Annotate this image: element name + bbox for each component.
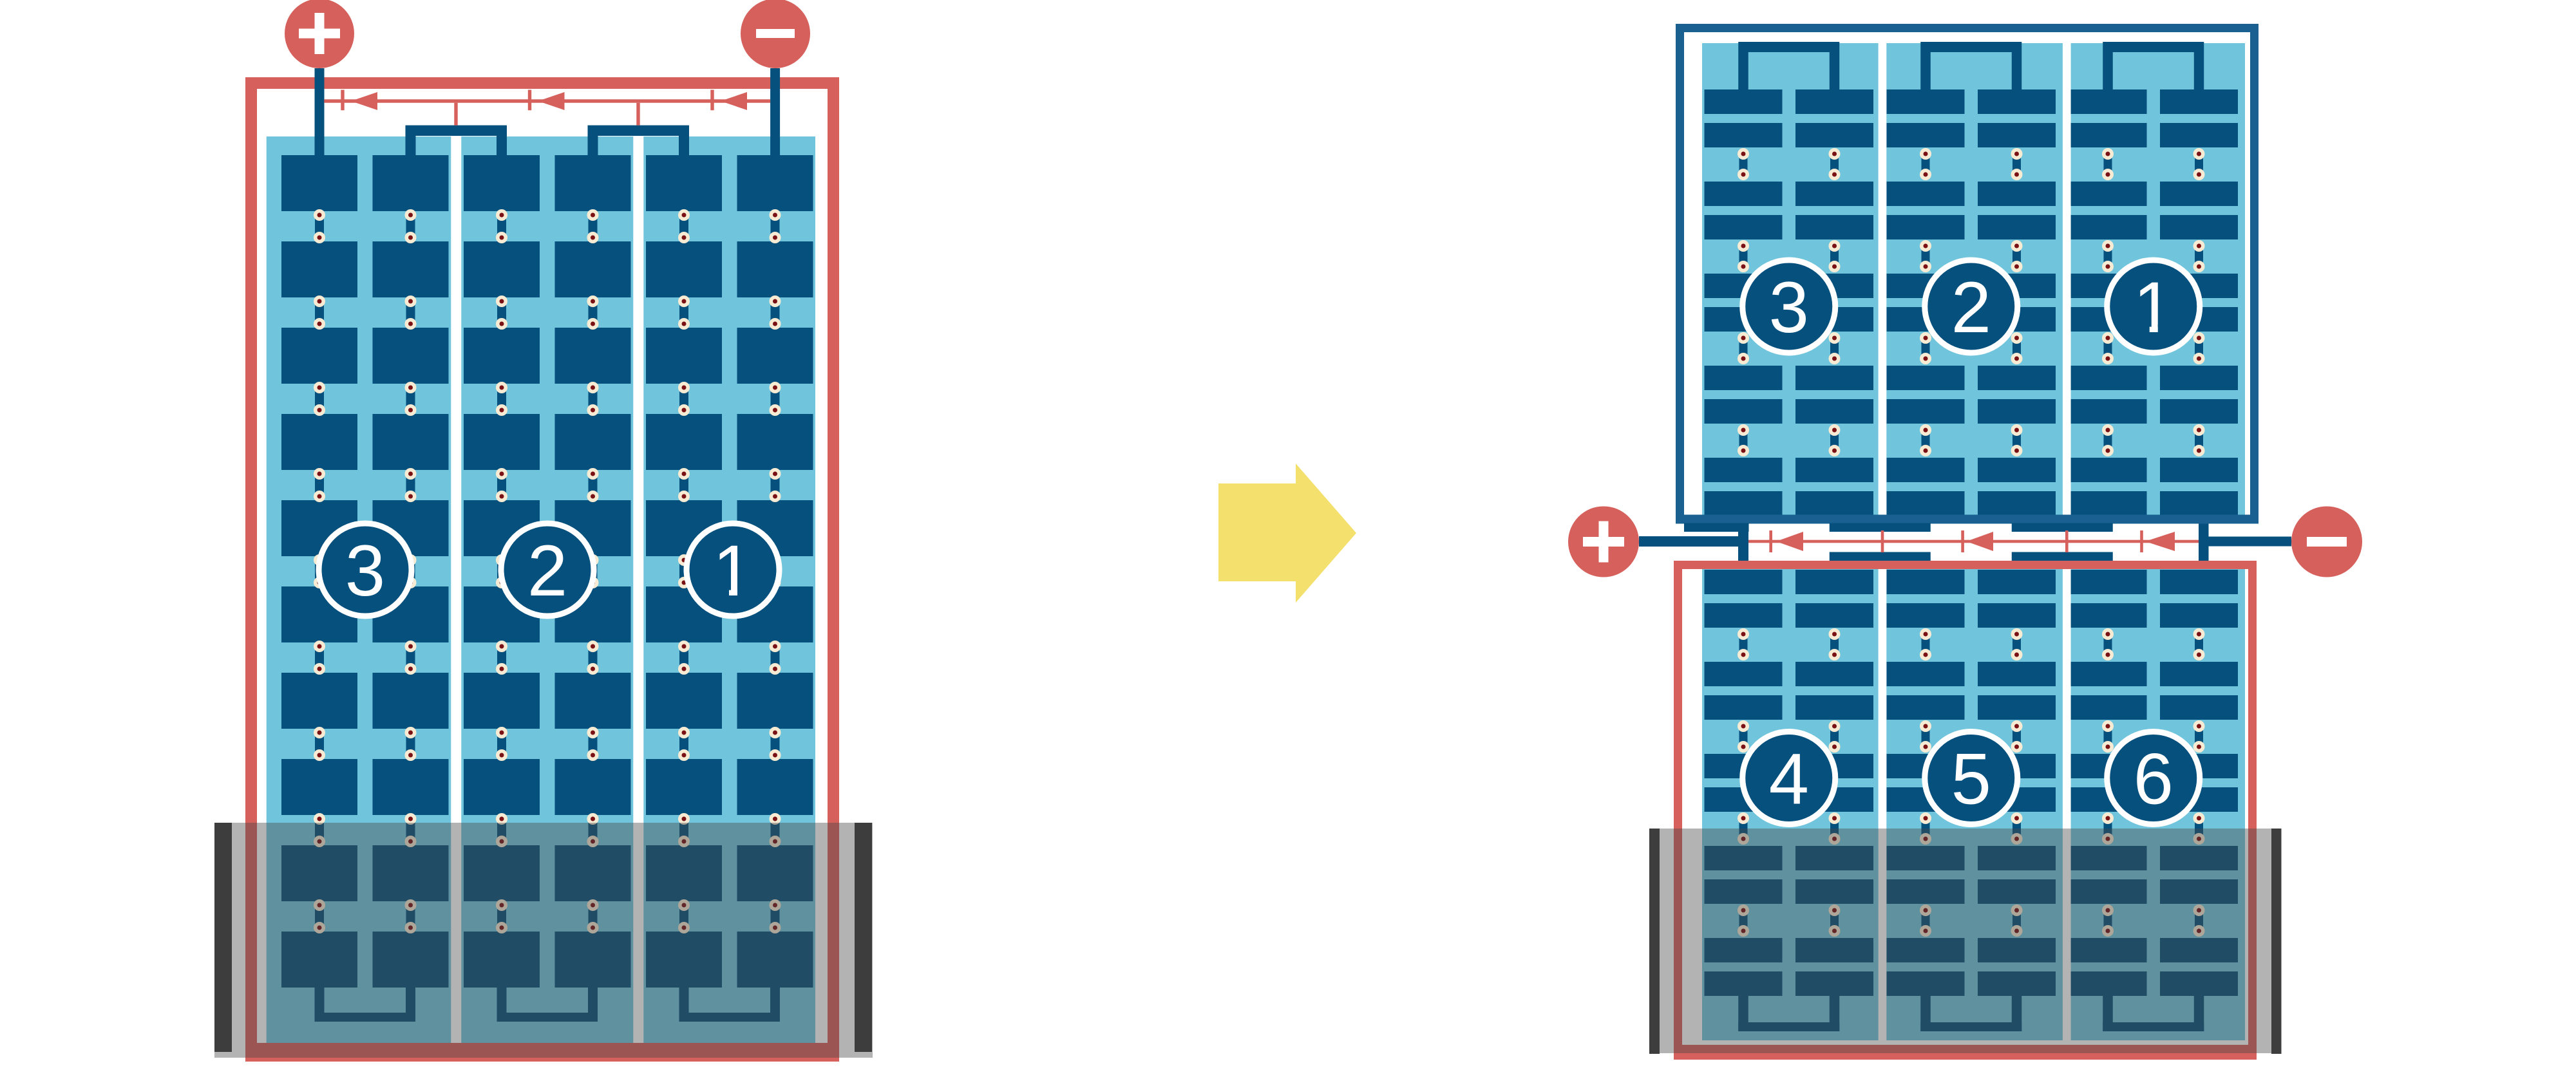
svg-text:1: 1 (2134, 267, 2173, 348)
svg-text:2: 2 (527, 530, 567, 611)
svg-text:5: 5 (1951, 739, 1991, 820)
svg-text:6: 6 (2134, 739, 2173, 820)
svg-text:4: 4 (1769, 739, 1809, 820)
svg-text:2: 2 (1951, 267, 1991, 348)
svg-text:1: 1 (713, 530, 753, 611)
svg-text:3: 3 (345, 530, 385, 611)
svg-text:3: 3 (1769, 267, 1809, 348)
